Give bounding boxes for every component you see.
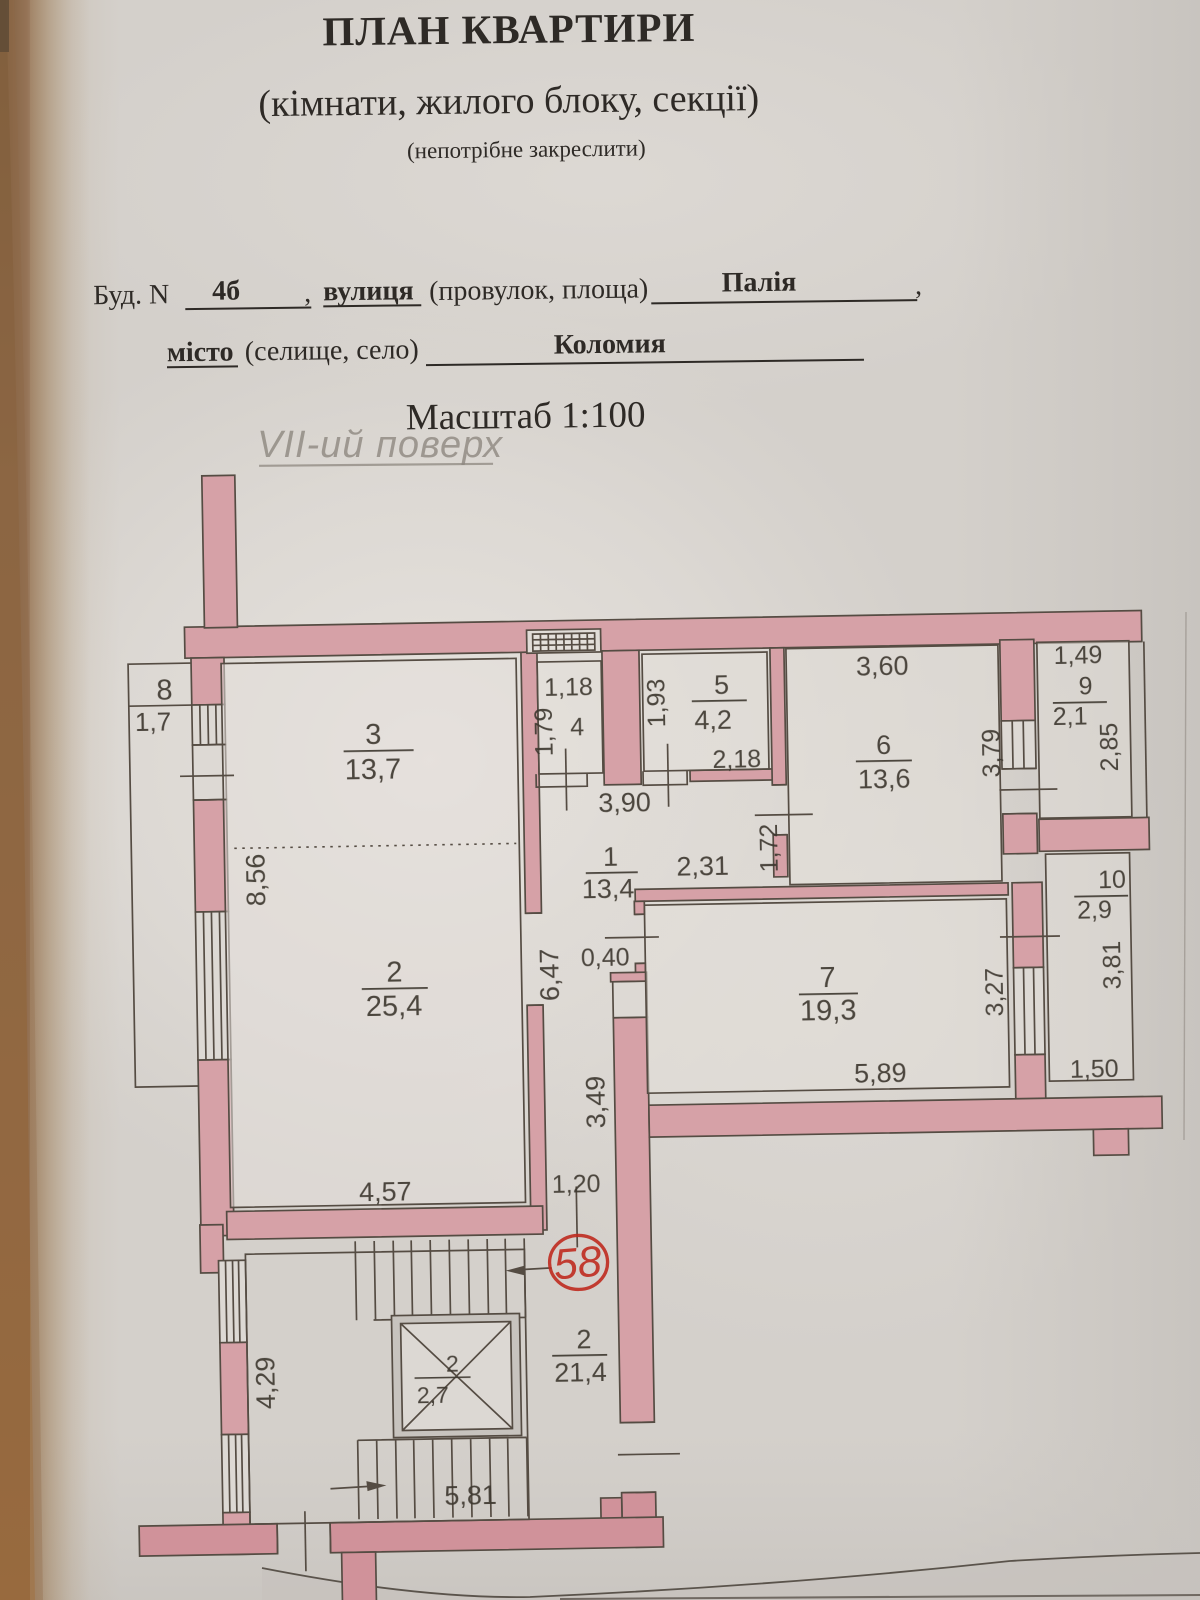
svg-text:1,79: 1,79 bbox=[530, 707, 559, 756]
svg-text:13,4: 13,4 bbox=[582, 873, 635, 904]
svg-text:3,79: 3,79 bbox=[977, 729, 1006, 778]
svg-text:3,27: 3,27 bbox=[980, 968, 1009, 1017]
svg-text:7: 7 bbox=[819, 962, 836, 994]
svg-text:,: , bbox=[915, 270, 922, 301]
svg-text:9: 9 bbox=[1078, 672, 1092, 700]
svg-text:2,7: 2,7 bbox=[417, 1382, 449, 1409]
svg-text:Буд. N: Буд. N bbox=[93, 279, 169, 311]
svg-text:місто: місто bbox=[167, 336, 234, 368]
svg-text:1,50: 1,50 bbox=[1070, 1055, 1119, 1084]
svg-text:(провулок, площа): (провулок, площа) bbox=[429, 273, 649, 307]
svg-text:1,93: 1,93 bbox=[642, 678, 671, 727]
svg-text:Палія: Палія bbox=[721, 267, 796, 299]
svg-text:(непотрібне закреслити): (непотрібне закреслити) bbox=[407, 135, 646, 163]
svg-text:1,20: 1,20 bbox=[552, 1170, 601, 1199]
svg-text:25,4: 25,4 bbox=[366, 990, 423, 1023]
svg-text:(кімнати, жилого блоку, секції: (кімнати, жилого блоку, секції) bbox=[258, 77, 759, 125]
svg-text:4,2: 4,2 bbox=[694, 705, 732, 736]
svg-text:3,60: 3,60 bbox=[856, 651, 909, 682]
svg-text:ПЛАН КВАРТИРИ: ПЛАН КВАРТИРИ bbox=[322, 4, 696, 55]
svg-text:21,4: 21,4 bbox=[554, 1357, 607, 1388]
svg-text:0,40: 0,40 bbox=[581, 943, 630, 972]
svg-text:2: 2 bbox=[386, 956, 403, 988]
svg-text:3: 3 bbox=[365, 719, 382, 751]
svg-text:13,6: 13,6 bbox=[858, 764, 911, 795]
svg-text:VII-ий поверх: VII-ий поверх bbox=[257, 424, 504, 466]
svg-text:5: 5 bbox=[714, 670, 730, 700]
svg-text:2: 2 bbox=[576, 1324, 592, 1354]
svg-text:8: 8 bbox=[156, 674, 173, 706]
svg-text:5,81: 5,81 bbox=[444, 1480, 497, 1511]
svg-text:,: , bbox=[304, 278, 311, 309]
svg-text:1,49: 1,49 bbox=[1053, 641, 1102, 670]
svg-text:вулиця: вулиця bbox=[323, 275, 414, 307]
svg-text:2,31: 2,31 bbox=[676, 851, 729, 882]
svg-text:3,81: 3,81 bbox=[1098, 940, 1127, 989]
svg-text:6: 6 bbox=[876, 730, 892, 760]
svg-text:6,47: 6,47 bbox=[534, 948, 565, 1001]
svg-text:4,57: 4,57 bbox=[359, 1176, 412, 1207]
svg-text:(селище, село): (селище, село) bbox=[245, 334, 419, 367]
svg-text:19,3: 19,3 bbox=[800, 995, 857, 1028]
svg-text:1,18: 1,18 bbox=[544, 673, 593, 702]
svg-text:3,49: 3,49 bbox=[580, 1076, 611, 1129]
svg-text:5,89: 5,89 bbox=[854, 1058, 907, 1089]
svg-text:2,85: 2,85 bbox=[1095, 722, 1124, 771]
svg-text:4: 4 bbox=[570, 713, 584, 741]
svg-text:4б: 4б bbox=[212, 275, 240, 306]
svg-text:1: 1 bbox=[603, 842, 619, 872]
svg-text:58: 58 bbox=[552, 1237, 604, 1289]
svg-text:10: 10 bbox=[1098, 866, 1126, 894]
svg-text:2,1: 2,1 bbox=[1053, 702, 1088, 731]
svg-text:1,7: 1,7 bbox=[135, 706, 172, 737]
svg-text:Коломия: Коломия bbox=[554, 328, 666, 360]
svg-text:2,18: 2,18 bbox=[712, 745, 761, 774]
svg-text:2: 2 bbox=[446, 1351, 459, 1377]
svg-text:8,56: 8,56 bbox=[240, 853, 271, 906]
svg-text:3,90: 3,90 bbox=[598, 787, 651, 818]
svg-text:1,72: 1,72 bbox=[755, 823, 784, 872]
svg-text:13,7: 13,7 bbox=[344, 753, 401, 786]
svg-text:4,29: 4,29 bbox=[250, 1356, 281, 1409]
svg-text:2,9: 2,9 bbox=[1077, 896, 1112, 925]
